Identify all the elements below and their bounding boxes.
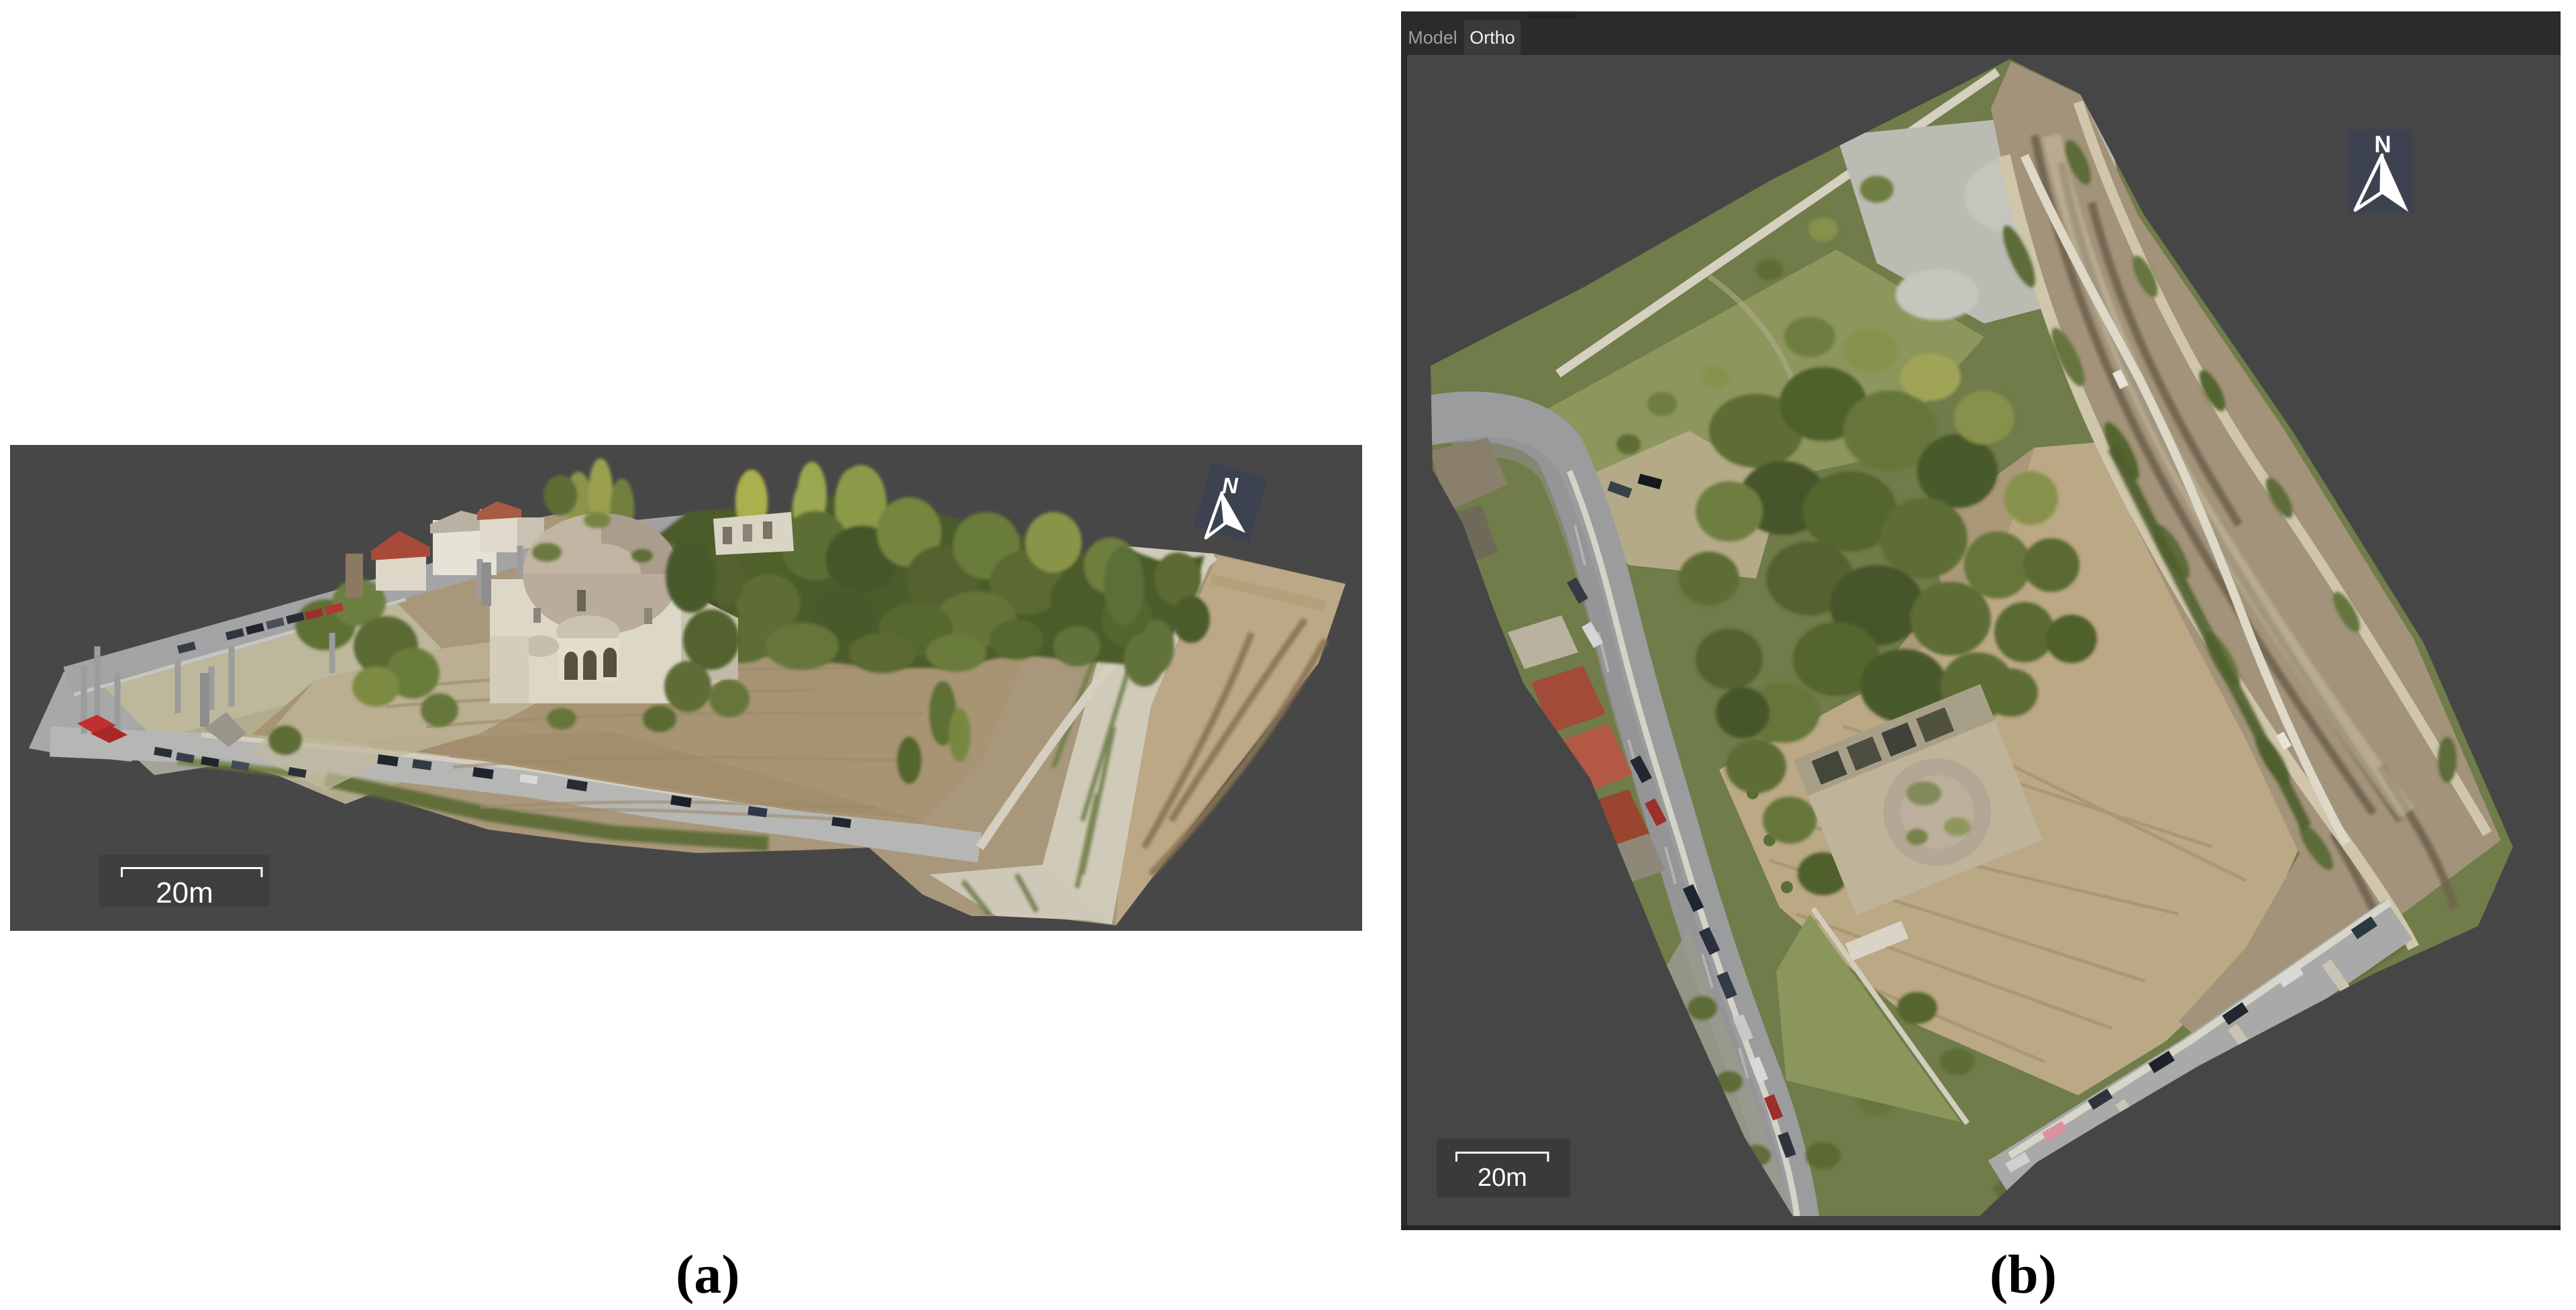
svg-text:20m: 20m [1478,1164,1527,1192]
svg-text:20m: 20m [156,876,213,907]
svg-text:N: N [1222,473,1239,498]
